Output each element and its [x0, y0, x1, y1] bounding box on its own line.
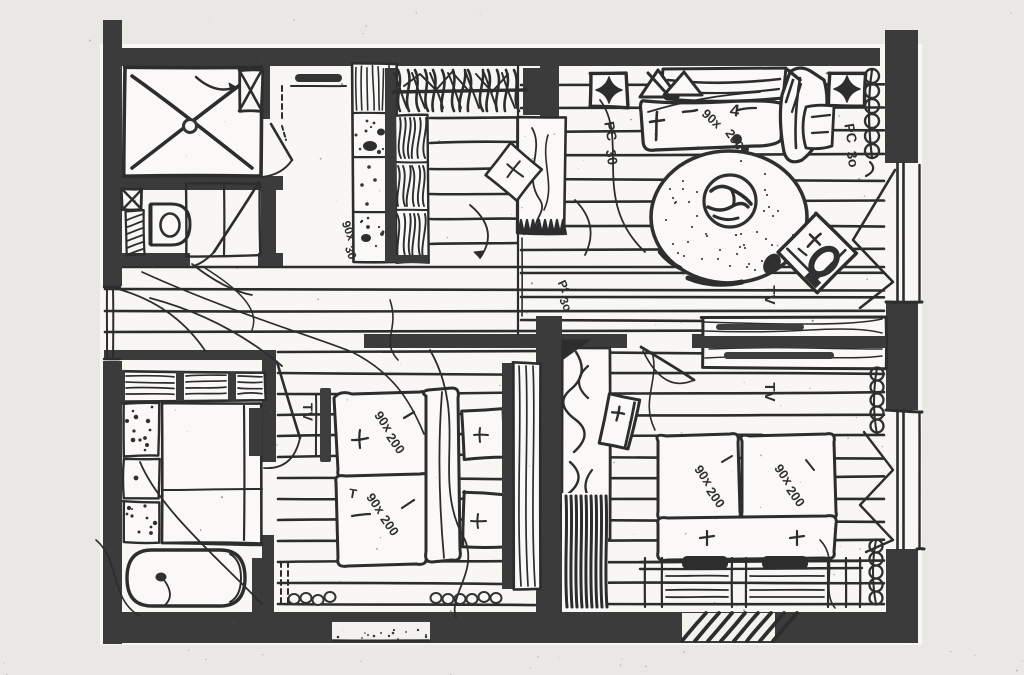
svg-text:TV: TV	[761, 285, 778, 304]
svg-text:TV: TV	[761, 382, 778, 401]
svg-text:3o: 3o	[844, 150, 863, 169]
svg-text:PC: PC	[841, 122, 860, 144]
svg-text:30: 30	[603, 148, 621, 166]
svg-text:TV: TV	[300, 403, 316, 422]
